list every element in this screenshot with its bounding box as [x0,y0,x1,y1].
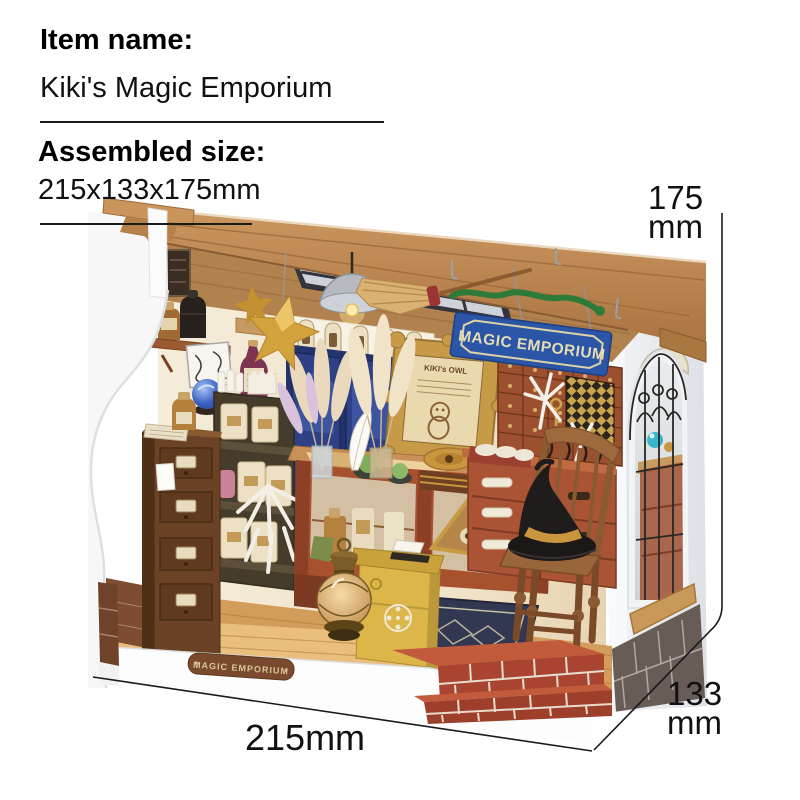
black-jar [180,296,206,338]
blue-potion-in-window [647,432,663,448]
assembled-size-label: Assembled size: [38,138,265,167]
left-gable-edge [148,208,167,298]
height-unit: mm [648,212,703,241]
height-dimension-label: 175 mm [648,183,703,241]
right-exterior-wall [604,300,707,714]
divider-under-item-name [40,121,384,123]
glass-vase [312,446,332,478]
width-dimension-label: 215mm [245,717,365,759]
left-post-tiles [98,582,119,666]
item-name-label: Item name: [40,26,193,55]
filing-cabinet [142,392,222,664]
item-name-value: Kiki's Magic Emporium [40,74,332,103]
arched-window [628,351,696,634]
divider-under-size [40,223,252,225]
lamp-bulb [346,304,358,316]
framed-print [166,250,190,296]
side-note [156,463,175,490]
pink-cloth-roll [218,470,235,498]
depth-dimension-label: 133 mm [667,679,722,737]
assembled-size-value: 215x133x175mm [38,176,260,205]
depth-unit: mm [667,708,722,737]
product-card: KIKI's OWL [0,0,800,800]
